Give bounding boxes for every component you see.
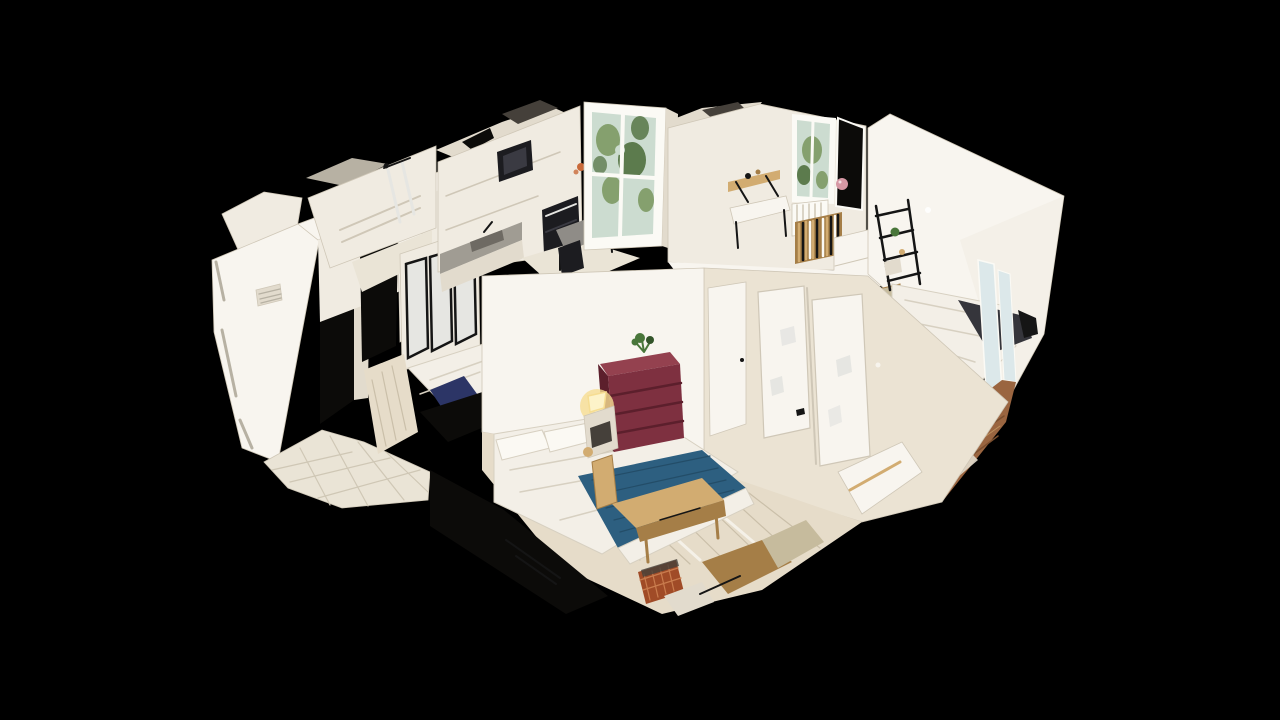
glass-pane-1 xyxy=(406,258,428,358)
foliage xyxy=(638,188,654,212)
apartment-3d-render xyxy=(0,0,1280,720)
desk-clutter xyxy=(745,173,751,179)
office-window-mullion xyxy=(811,121,813,197)
shelf-jar xyxy=(899,249,905,255)
pink-balloon xyxy=(836,178,848,190)
desk-clutter xyxy=(756,170,761,175)
plant-leaves xyxy=(632,339,639,346)
balloon-highlight xyxy=(839,181,842,184)
lens-flare-dot-2 xyxy=(876,363,881,368)
dollhouse-viewport[interactable] xyxy=(0,0,1280,720)
foliage xyxy=(593,156,607,174)
foliage xyxy=(631,116,649,140)
wardrobe-door-2 xyxy=(812,294,870,466)
foliage xyxy=(797,165,811,185)
plant-leaves xyxy=(646,336,654,344)
flowers-2 xyxy=(574,170,579,175)
door-handle xyxy=(740,358,744,362)
wardrobe-door-1 xyxy=(758,286,810,438)
office-room xyxy=(666,102,886,294)
dark-glass-door xyxy=(836,118,864,210)
sky-gap xyxy=(622,179,634,191)
foliage xyxy=(816,171,828,189)
cat-on-bed xyxy=(583,447,593,457)
cat-tree-post xyxy=(592,455,617,509)
shower-head xyxy=(384,164,389,169)
shelf-plant xyxy=(891,228,900,237)
lens-flare-dot xyxy=(925,207,931,213)
